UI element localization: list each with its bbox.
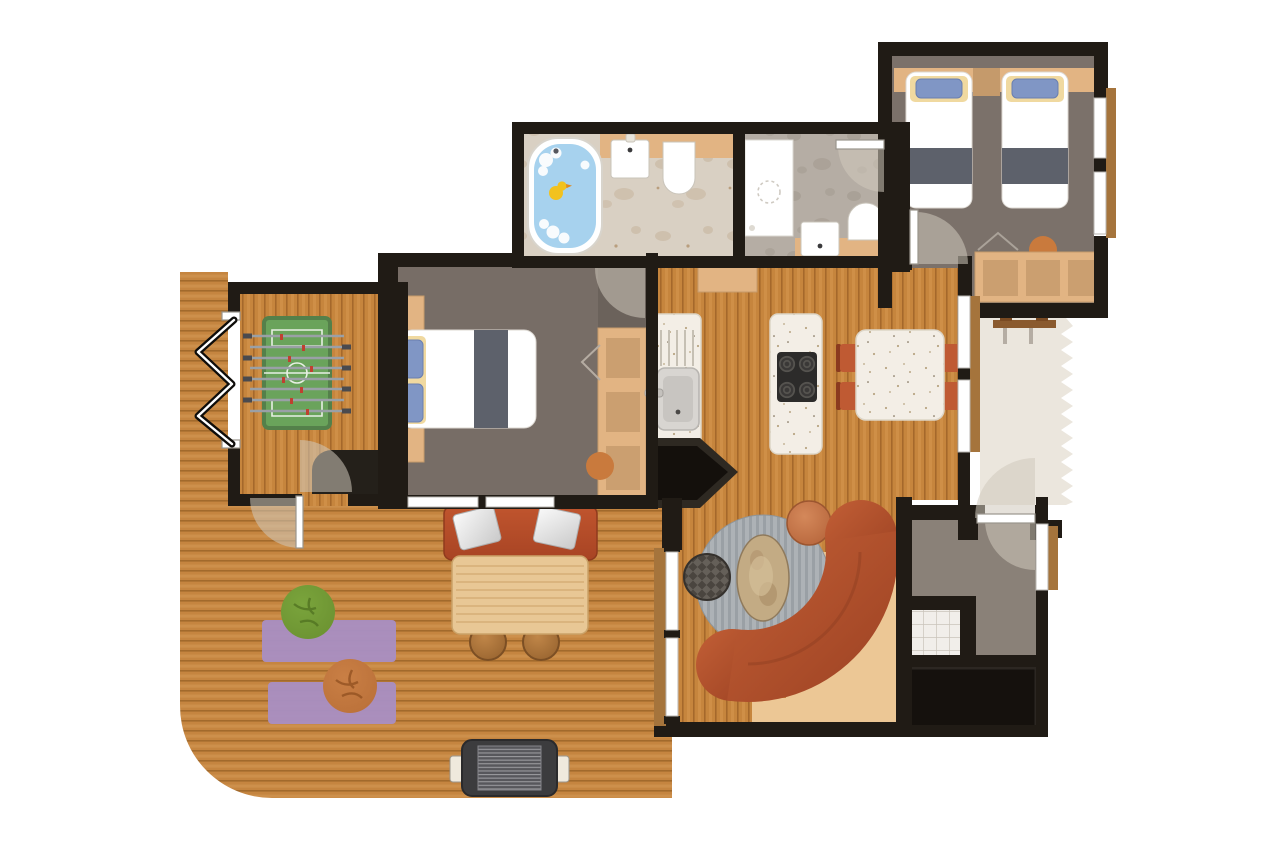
bath-drain [553, 148, 558, 153]
double-bed [400, 330, 536, 428]
pouf [684, 554, 730, 600]
glass-door-mullion [664, 716, 680, 724]
games-door-threshold [298, 494, 352, 506]
picnic-table [452, 556, 588, 634]
bed-runner [1002, 148, 1068, 184]
bed-runner [474, 330, 508, 428]
window [486, 497, 554, 507]
window-sill [1106, 88, 1116, 238]
window [958, 296, 970, 368]
coffee-table [737, 535, 789, 621]
window [1094, 98, 1106, 158]
grill-grate [478, 746, 541, 790]
entry-door-leaf [977, 514, 1035, 523]
window [1036, 524, 1048, 590]
window [1094, 172, 1106, 234]
living-tan-area-strip [752, 698, 792, 724]
garden-bench [444, 505, 597, 560]
door-leaf [296, 496, 303, 548]
single-bed-right [1002, 72, 1068, 208]
ottoman [787, 501, 831, 545]
washbasin [611, 134, 649, 178]
bed-pillow [1012, 79, 1058, 98]
glass-door-mullion [664, 630, 680, 638]
glass-door [666, 638, 678, 716]
floor-plan-page [0, 0, 1280, 852]
window-sill [1048, 526, 1058, 590]
single-bed-left [906, 72, 972, 208]
bean-bag-green [281, 585, 335, 639]
toilet [663, 142, 695, 194]
wardrobe-basket [586, 452, 614, 480]
glass-door [666, 552, 678, 630]
washbasin [801, 222, 839, 256]
window [408, 497, 478, 507]
window-sill [970, 296, 980, 452]
floor-plan-canvas [0, 0, 1280, 852]
tiled-closet-floor [912, 608, 962, 660]
headboard-divider [973, 68, 1000, 96]
cooktop-island [770, 314, 822, 454]
shower [745, 140, 793, 236]
door-leaf [910, 210, 918, 264]
bathtub [528, 138, 602, 254]
glass-door-mullion [664, 544, 680, 552]
bed-pillow [916, 79, 962, 98]
bed-runner [906, 148, 972, 184]
door-leaf [836, 140, 884, 149]
bean-bag-orange [323, 659, 377, 713]
barbecue-grill [450, 740, 569, 796]
dining-table [856, 330, 944, 420]
window [958, 380, 970, 452]
